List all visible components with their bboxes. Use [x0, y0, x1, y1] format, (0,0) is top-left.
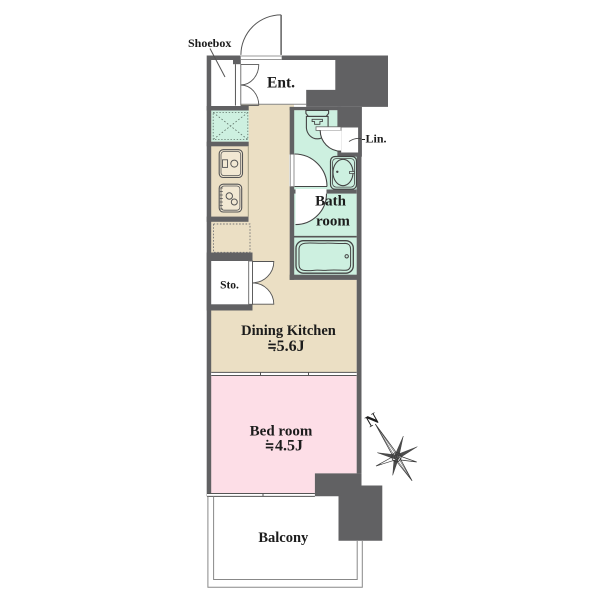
svg-text:Dining Kitchen: Dining Kitchen — [241, 323, 336, 339]
svg-text:Shoebox: Shoebox — [188, 36, 231, 50]
svg-text:Bath: Bath — [315, 193, 347, 209]
svg-text:Balcony: Balcony — [258, 530, 309, 546]
svg-text:Sto.: Sto. — [220, 280, 239, 292]
svg-text:Ent.: Ent. — [267, 75, 295, 92]
svg-text:room: room — [316, 214, 350, 230]
svg-text:5.6J: 5.6J — [277, 338, 305, 355]
svg-text:-Lin.: -Lin. — [362, 132, 387, 146]
svg-text:4.5J: 4.5J — [275, 437, 303, 454]
